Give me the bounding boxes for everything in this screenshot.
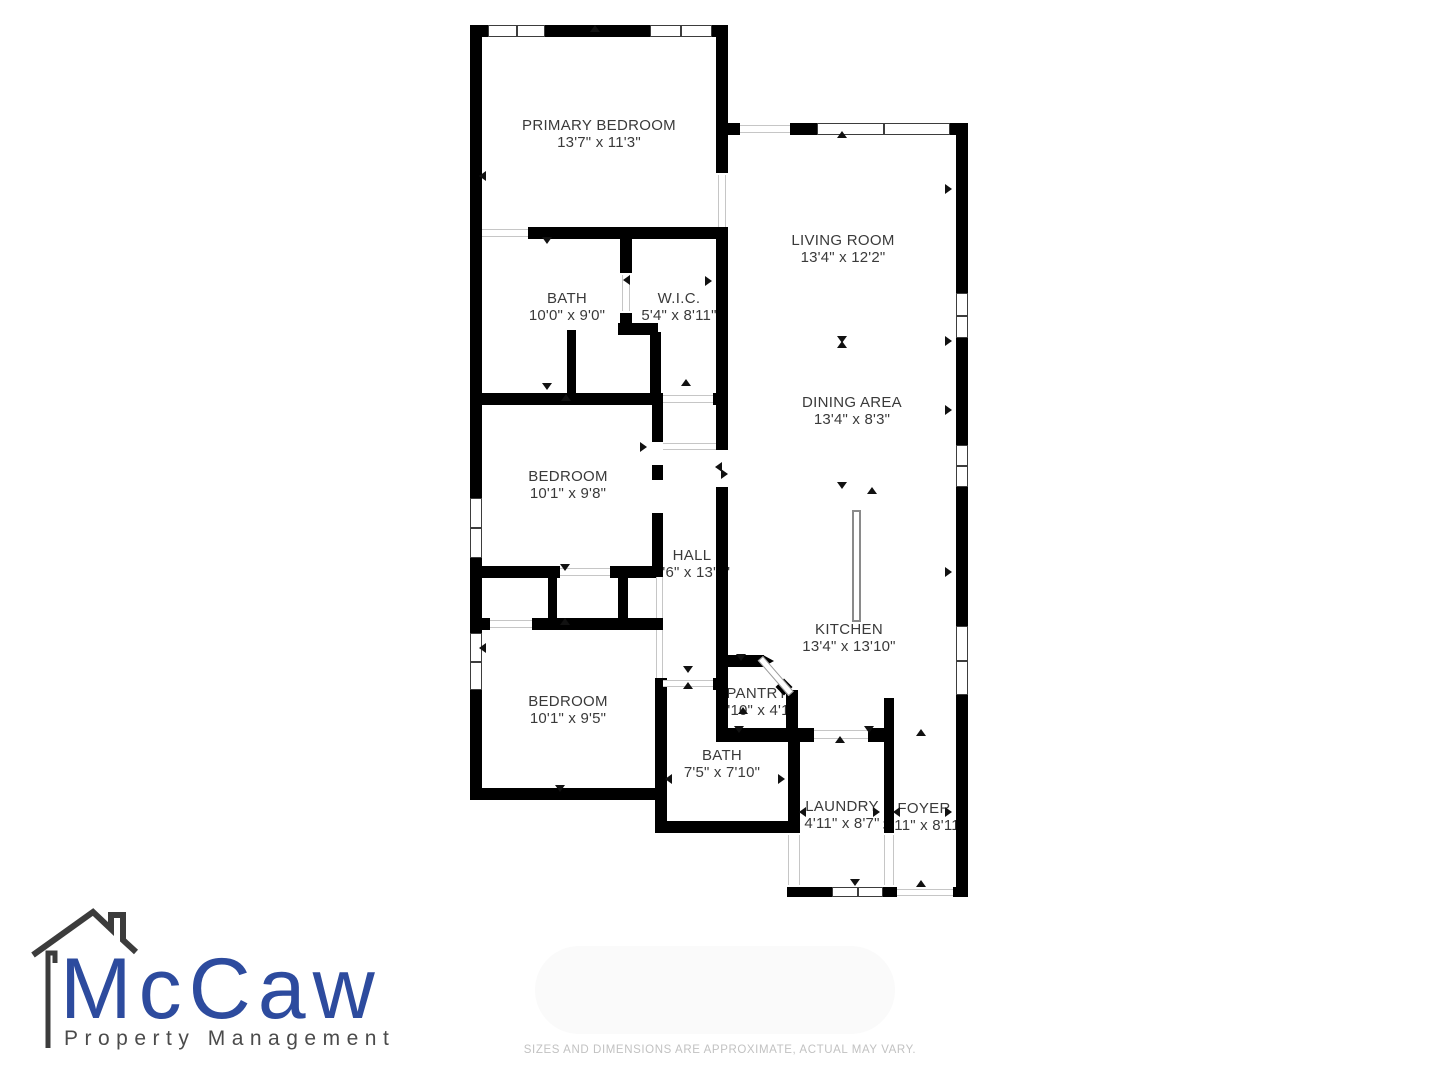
room-name: BATH: [529, 290, 605, 307]
window: [470, 633, 482, 690]
wall-segment: [470, 788, 666, 800]
door-opening: [490, 620, 532, 628]
room-name: PRIMARY BEDROOM: [522, 117, 676, 134]
door-arrow: [560, 618, 570, 625]
door-arrow: [864, 726, 874, 733]
room-label-bath-2: BATH 7'5" x 7'10": [684, 747, 760, 781]
door-arrow: [835, 736, 845, 743]
room-dims: 13'4" x 8'3": [802, 411, 902, 428]
door-opening: [884, 835, 894, 885]
wall-segment: [956, 123, 968, 897]
door-arrow: [837, 482, 847, 489]
door-arrow: [479, 171, 486, 181]
room-label-bedroom-1: BEDROOM 10'1" x 9'8": [528, 468, 608, 502]
window: [832, 887, 883, 897]
room-name: BEDROOM: [528, 693, 608, 710]
wall-segment: [716, 487, 728, 732]
room-dims: 3'11" x 8'11": [883, 817, 966, 834]
room-name: BEDROOM: [528, 468, 608, 485]
wall-segment: [655, 821, 800, 833]
room-dims: 3'10" x 4'1": [719, 702, 795, 719]
wall-segment: [713, 678, 727, 690]
window-divider: [471, 527, 481, 529]
window: [488, 25, 545, 37]
room-label-kitchen: KITCHEN 13'4" x 13'10": [802, 621, 895, 655]
door-opening: [897, 889, 953, 896]
door-arrow: [850, 879, 860, 886]
door-arrow: [778, 774, 785, 784]
room-dims: 7'5" x 7'10": [684, 764, 760, 781]
door-arrow: [479, 643, 486, 653]
door-arrow: [945, 184, 952, 194]
brand-name: McCaw: [60, 946, 382, 1032]
room-dims: 4'11" x 8'7": [804, 815, 879, 832]
floor-plan-page: PRIMARY BEDROOM 13'7" x 11'3" LIVING ROO…: [0, 0, 1440, 1080]
door-opening: [663, 443, 716, 450]
room-dims: 5'4" x 8'11": [641, 307, 716, 324]
door-opening: [663, 395, 713, 403]
window-divider: [883, 124, 885, 134]
window: [650, 25, 712, 37]
door-arrow: [945, 336, 952, 346]
room-name: BATH: [684, 747, 760, 764]
wall-segment: [787, 887, 832, 897]
room-dims: 10'1" x 9'8": [528, 485, 608, 502]
wall-segment: [726, 123, 740, 135]
room-label-bedroom-2: BEDROOM 10'1" x 9'5": [528, 693, 608, 727]
door-arrow: [945, 807, 952, 817]
door-arrow: [590, 25, 600, 32]
wall-segment: [655, 678, 667, 821]
room-label-laundry: LAUNDRY 4'11" x 8'7": [804, 798, 879, 832]
room-dims: 10'0" x 9'0": [529, 307, 605, 324]
door-arrow: [555, 785, 565, 792]
window-divider: [957, 660, 967, 662]
window-divider: [471, 661, 481, 663]
wall-segment: [652, 465, 663, 480]
room-dims: 13'4" x 13'10": [802, 638, 895, 655]
door-arrow: [867, 487, 877, 494]
wall-segment: [528, 227, 728, 239]
door-opening: [788, 835, 800, 885]
wall-segment: [470, 227, 482, 239]
window-divider: [680, 26, 682, 36]
room-dims: 10'1" x 9'5": [528, 710, 608, 727]
door-arrow: [916, 880, 926, 887]
door-arrow: [640, 442, 647, 452]
room-name: KITCHEN: [802, 621, 895, 638]
door-arrow: [542, 383, 552, 390]
room-label-wic: W.I.C. 5'4" x 8'11": [641, 290, 716, 324]
wall-segment: [950, 123, 968, 135]
door-arrow: [561, 394, 571, 401]
door-arrow: [705, 276, 712, 286]
door-arrow: [623, 275, 630, 285]
door-opening: [656, 630, 663, 678]
door-arrow: [542, 237, 552, 244]
door-opening: [718, 175, 726, 227]
door-opening: [482, 229, 528, 237]
room-dims: 13'4" x 12'2": [791, 249, 894, 266]
door-arrow: [873, 807, 880, 817]
room-name: DINING AREA: [802, 394, 902, 411]
wall-segment: [652, 403, 663, 442]
door-arrow: [893, 807, 900, 817]
door-arrow: [736, 654, 746, 661]
window: [956, 626, 968, 695]
wall-segment: [716, 239, 728, 450]
door-arrow: [683, 666, 693, 673]
door-opening: [656, 577, 663, 618]
room-label-living-room: LIVING ROOM 13'4" x 12'2": [791, 232, 894, 266]
room-label-primary-bedroom: PRIMARY BEDROOM 13'7" x 11'3": [522, 117, 676, 151]
disclaimer-text: SIZES AND DIMENSIONS ARE APPROXIMATE, AC…: [0, 1044, 1440, 1056]
window-divider: [957, 315, 967, 317]
room-name: LIVING ROOM: [791, 232, 894, 249]
wall-segment: [788, 732, 800, 833]
window: [470, 498, 482, 558]
kitchen-island: [852, 510, 861, 622]
door-arrow: [665, 774, 672, 784]
window-divider: [857, 888, 859, 896]
door-arrow: [560, 564, 570, 571]
wall-segment: [713, 393, 728, 405]
door-arrow: [734, 726, 744, 733]
room-label-foyer: FOYER 3'11" x 8'11": [883, 800, 966, 834]
door-arrow: [738, 707, 748, 714]
room-name: LAUNDRY: [804, 798, 879, 815]
window: [956, 445, 968, 487]
door-arrow: [683, 682, 693, 689]
room-label-dining-area: DINING AREA 13'4" x 8'3": [802, 394, 902, 428]
door-arrow: [681, 379, 691, 386]
door-arrow: [799, 807, 806, 817]
door-arrow: [837, 131, 847, 138]
wall-segment: [883, 887, 897, 897]
room-name: W.I.C.: [641, 290, 716, 307]
wall-segment: [532, 618, 663, 630]
room-dims: 13'7" x 11'3": [522, 134, 676, 151]
door-arrow: [721, 469, 728, 479]
window: [956, 293, 968, 338]
door-arrow: [945, 567, 952, 577]
wall-segment: [652, 513, 663, 566]
wall-segment: [790, 123, 817, 135]
door-opening: [740, 125, 790, 133]
door-arrow: [916, 729, 926, 736]
room-label-bath-1: BATH 10'0" x 9'0": [529, 290, 605, 324]
wall-segment: [618, 578, 628, 618]
wall-segment: [470, 566, 560, 578]
wall-segment: [470, 618, 490, 630]
window-divider: [516, 26, 518, 36]
door-arrow: [837, 341, 847, 348]
wall-segment: [620, 239, 632, 273]
window-divider: [957, 465, 967, 467]
door-arrow: [945, 405, 952, 415]
wall-segment: [548, 578, 557, 618]
wall-segment: [716, 25, 728, 173]
wall-segment: [716, 728, 814, 742]
